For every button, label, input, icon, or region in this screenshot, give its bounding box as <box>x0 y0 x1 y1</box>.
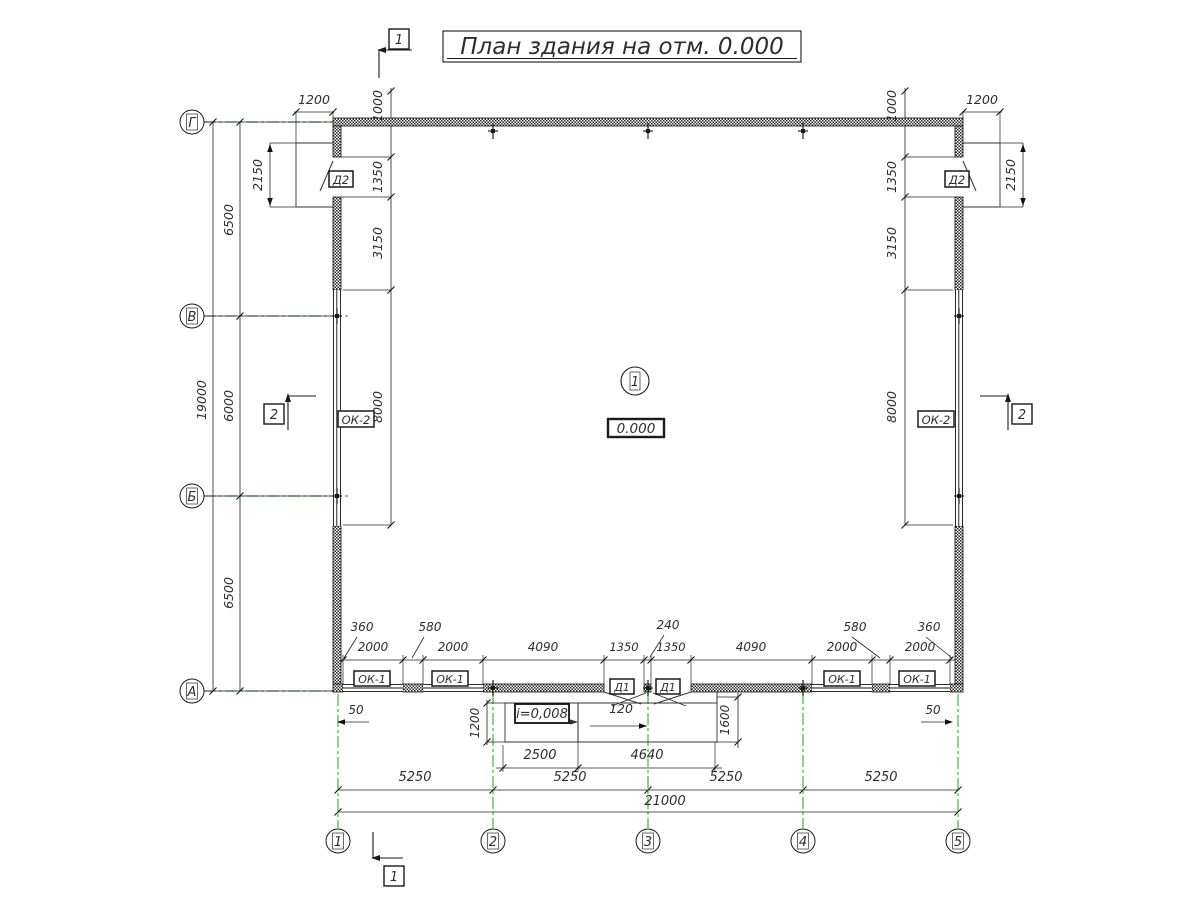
axis-grid-lines <box>204 122 958 828</box>
dim-label: 6500 <box>221 577 236 609</box>
col-axis-label: 4 <box>799 835 807 850</box>
dim-leader <box>344 637 357 658</box>
dim-label: 6000 <box>221 390 236 422</box>
dim-label: 240 <box>657 618 680 632</box>
window-tag: ОК-1 <box>436 673 463 686</box>
dim-label: 2000 <box>905 640 936 654</box>
dim-label: 4090 <box>736 640 767 654</box>
section-arrow <box>285 393 291 402</box>
wall-segment <box>955 126 963 157</box>
wall-segment <box>333 126 341 157</box>
dim-label: 4090 <box>528 640 559 654</box>
dim-label: 3150 <box>370 227 385 259</box>
dim-label: 4640 <box>630 748 663 763</box>
dim-arrowhead <box>1020 198 1026 206</box>
dim-label: 5250 <box>864 770 897 785</box>
row-axis-label: Б <box>188 490 197 505</box>
column-cross-core <box>491 686 495 690</box>
col-axis-label: 3 <box>644 835 652 850</box>
wall-segment <box>333 684 343 692</box>
dim-label: 580 <box>844 620 867 634</box>
dim-label: 2150 <box>1003 159 1018 191</box>
dim-label: 2150 <box>250 159 265 191</box>
elevation-mark: 0.000 <box>617 421 656 437</box>
dim-label: 19000 <box>194 380 209 420</box>
dim-label: 8000 <box>884 391 899 423</box>
dim-label: 1200 <box>966 92 998 107</box>
labels: 1200120010001000135013503150315080008000… <box>187 33 1027 885</box>
dim-label: 1600 <box>718 704 732 735</box>
floor-plan-sheet: 1200120010001000135013503150315080008000… <box>0 0 1200 900</box>
dim-arrowhead <box>267 144 273 152</box>
dim-label: 2000 <box>438 640 469 654</box>
section-label: 1 <box>390 870 398 885</box>
col-axis-label: 2 <box>489 835 497 850</box>
ramp-direction-arrow <box>570 719 578 724</box>
column-cross-core <box>646 686 650 690</box>
door-tag: Д1 <box>613 681 630 694</box>
section-label: 2 <box>270 408 278 423</box>
column-cross-core <box>801 129 805 133</box>
section-line <box>379 50 412 78</box>
dim-arrowhead <box>267 198 273 206</box>
wall-segment <box>691 684 812 692</box>
walls <box>333 118 963 692</box>
row-axis-label: А <box>187 685 197 700</box>
section-line <box>373 832 403 858</box>
window-tag: ОК-2 <box>342 413 371 427</box>
dim-label: 6500 <box>221 204 236 236</box>
dim-label: 5250 <box>398 770 431 785</box>
dim-label: 360 <box>351 620 374 634</box>
door-tag: Д2 <box>332 173 349 187</box>
dim-label: 2000 <box>358 640 389 654</box>
dim-label: 120 <box>609 701 633 716</box>
dim-arrowhead <box>945 719 953 725</box>
col-axis-label: 1 <box>334 835 342 850</box>
dim-label: 1350 <box>884 161 899 193</box>
window-tag: ОК-2 <box>922 413 951 427</box>
column-markers <box>332 123 964 696</box>
dim-label: 580 <box>419 620 442 634</box>
dim-label: 5250 <box>553 770 586 785</box>
dim-label: 1350 <box>370 161 385 193</box>
section-arrow <box>371 855 380 861</box>
dim-label: 1000 <box>884 90 899 122</box>
wall-segment <box>483 684 604 692</box>
dim-label: 5250 <box>709 770 742 785</box>
floor-plan-canvas: 1200120010001000135013503150315080008000… <box>0 0 1200 900</box>
room-number: 1 <box>631 375 639 390</box>
column-cross-core <box>491 129 495 133</box>
section-arrow <box>377 47 386 53</box>
slope-label: i=0,008 <box>516 707 568 722</box>
door-tag: Д1 <box>659 681 676 694</box>
column-cross-core <box>957 494 961 498</box>
wall-segment <box>333 526 341 684</box>
wall-segment <box>955 526 963 684</box>
dim-label: 50 <box>348 703 364 717</box>
column-cross-core <box>335 314 339 318</box>
door-tag: Д2 <box>948 173 965 187</box>
dim-label: 3150 <box>884 227 899 259</box>
dim-arrowhead <box>639 723 647 729</box>
column-cross-core <box>957 314 961 318</box>
column-cross-core <box>335 494 339 498</box>
dim-label: 1350 <box>656 640 685 654</box>
dim-leader <box>412 637 424 658</box>
wall-segment <box>333 197 341 290</box>
dim-label: 1350 <box>609 640 638 654</box>
dim-arrowhead <box>1020 144 1026 152</box>
page-title: План здания на отм. 0.000 <box>460 34 784 60</box>
section-arrow <box>1005 393 1011 402</box>
window-tag: ОК-1 <box>828 673 855 686</box>
window-tag: ОК-1 <box>903 673 930 686</box>
col-axis-label: 5 <box>954 835 962 850</box>
dim-label: 8000 <box>370 391 385 423</box>
dim-label: 1200 <box>298 92 330 107</box>
section-line <box>288 396 316 430</box>
dim-label: 1200 <box>468 707 482 738</box>
dim-label: 50 <box>925 703 941 717</box>
wall-segment <box>955 197 963 290</box>
dim-label: 21000 <box>644 794 685 809</box>
window-tag: ОК-1 <box>358 673 385 686</box>
section-line <box>980 396 1008 430</box>
wall-segment <box>872 684 890 692</box>
wall-segment <box>403 684 423 692</box>
column-cross-core <box>646 129 650 133</box>
dim-label: 1000 <box>370 90 385 122</box>
section-label: 2 <box>1018 408 1026 423</box>
dim-label: 2500 <box>523 748 556 763</box>
row-axis-label: В <box>188 310 197 325</box>
wall-segment <box>950 684 963 692</box>
section-label: 1 <box>395 33 403 48</box>
column-cross-core <box>801 686 805 690</box>
dim-label: 2000 <box>827 640 858 654</box>
dim-label: 360 <box>918 620 941 634</box>
